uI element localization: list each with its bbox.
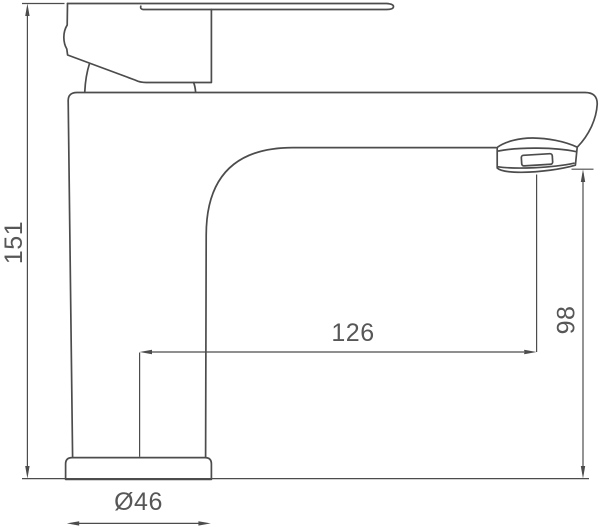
arrow-up-icon (25, 4, 29, 17)
handle-base-block (64, 4, 212, 83)
dimension-label-98: 98 (553, 306, 581, 335)
drawing-canvas: 151 126 98 Ø46 (0, 0, 600, 527)
handle-lever (68, 4, 394, 10)
dimension-spout-height: 98 (553, 169, 594, 478)
arrow-down-icon (581, 466, 585, 479)
arrow-down-icon (25, 466, 29, 479)
dimension-base-diameter: Ø46 (67, 488, 211, 526)
handle-joint-right-line (194, 83, 196, 93)
spout-underside (206, 148, 496, 458)
arrow-right-icon (198, 521, 210, 525)
arrow-right-icon (524, 350, 536, 354)
arrow-left-icon (67, 521, 79, 525)
dimension-spout-reach: 126 (140, 175, 537, 457)
aerator-outlet (521, 154, 553, 166)
handle-joint-left-line (85, 64, 90, 92)
base-flange (66, 458, 212, 480)
dimension-label-126: 126 (331, 319, 374, 347)
dimension-label-151: 151 (0, 221, 28, 264)
dimension-label-d46: Ø46 (114, 488, 163, 516)
arrow-left-icon (140, 350, 152, 354)
spout-outlet-top-face-line (499, 148, 576, 151)
arrow-up-icon (581, 169, 585, 182)
dimension-total-height: 151 (0, 4, 589, 479)
faucet-dimension-drawing: 151 126 98 Ø46 (0, 0, 600, 527)
faucet-outline (64, 4, 597, 480)
body-left-edge (68, 101, 72, 458)
